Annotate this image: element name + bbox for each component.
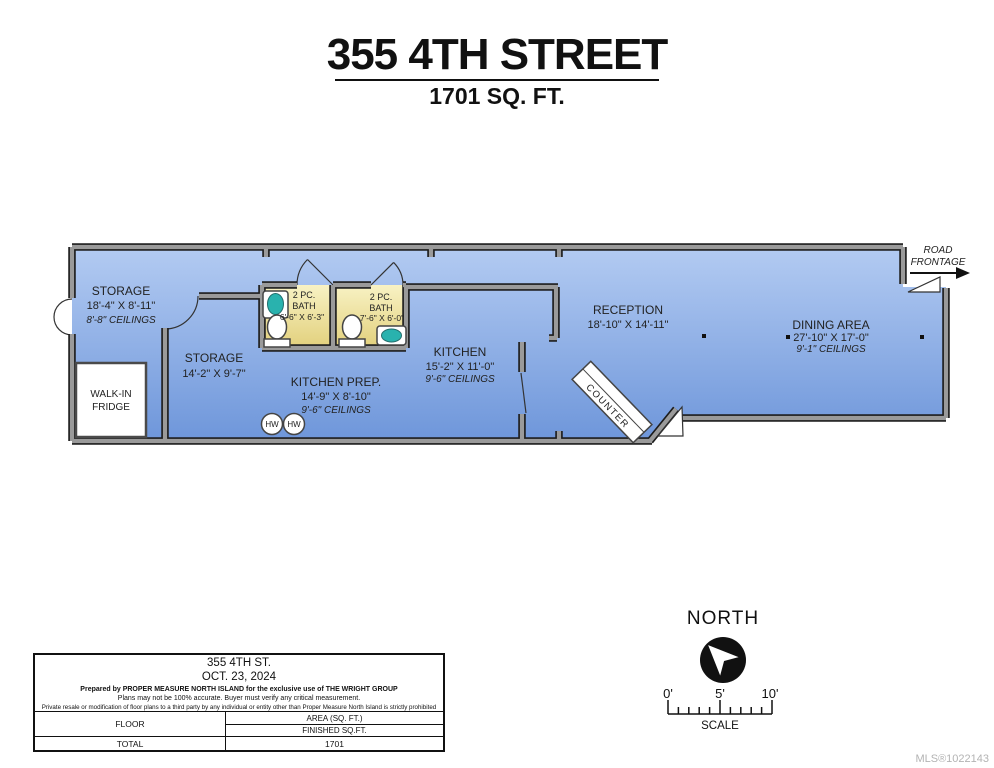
svg-text:STORAGE: STORAGE (185, 351, 243, 365)
svg-text:27'-10" X 17'-0": 27'-10" X 17'-0" (793, 332, 869, 344)
svg-text:STORAGE: STORAGE (92, 284, 150, 298)
svg-text:BATH: BATH (369, 303, 392, 313)
svg-text:6'-6" X 6'-3": 6'-6" X 6'-3" (280, 312, 324, 322)
room-label-kitchen-prep: KITCHEN PREP. 14'-9" X 8'-10" 9'-6" CEIL… (291, 375, 381, 416)
svg-text:BATH: BATH (292, 301, 315, 311)
svg-text:8'-8" CEILINGS: 8'-8" CEILINGS (86, 315, 156, 326)
road-frontage: ROAD FRONTAGE (910, 245, 970, 279)
info-prepared-by: Prepared by PROPER MEASURE NORTH ISLAND … (35, 686, 443, 693)
entry-door-leaf-northeast (908, 277, 940, 292)
svg-text:DINING AREA: DINING AREA (792, 318, 869, 332)
table-finished-header: FINISHED SQ.FT. (226, 725, 443, 736)
svg-text:HW: HW (287, 420, 301, 429)
mls-watermark: MLS®1022143 (915, 753, 989, 765)
toilet-tank-icon (264, 339, 290, 347)
svg-text:FRIDGE: FRIDGE (92, 402, 130, 413)
north-compass-icon (695, 632, 751, 688)
table-area-header: AREA (SQ. FT.) (226, 712, 443, 725)
table-total-label: TOTAL (35, 737, 225, 750)
info-date: OCT. 23, 2024 (35, 671, 443, 683)
svg-text:ROAD: ROAD (924, 245, 953, 256)
room-label-dining: DINING AREA 27'-10" X 17'-0" 9'-1" CEILI… (792, 318, 869, 355)
room-label-kitchen: KITCHEN 15'-2" X 11'-0" 9'-6" CEILINGS (425, 345, 495, 385)
svg-text:15'-2" X 11'-0": 15'-2" X 11'-0" (426, 361, 495, 373)
svg-text:7'-6" X 6'-0": 7'-6" X 6'-0" (360, 313, 404, 323)
svg-text:9'-6" CEILINGS: 9'-6" CEILINGS (301, 405, 371, 416)
svg-text:2 PC.: 2 PC. (293, 290, 316, 300)
svg-text:14'-9" X 8'-10": 14'-9" X 8'-10" (301, 391, 371, 403)
svg-text:WALK-IN: WALK-IN (90, 389, 131, 400)
info-address: 355 4TH ST. (35, 657, 443, 669)
svg-text:5': 5' (715, 688, 725, 701)
svg-text:FRONTAGE: FRONTAGE (911, 257, 966, 268)
svg-text:18'-10" X 14'-11": 18'-10" X 14'-11" (588, 319, 669, 331)
table-floor-label: FLOOR (35, 712, 225, 736)
svg-text:9'-6" CEILINGS: 9'-6" CEILINGS (425, 374, 495, 385)
flyer-page: 355 4TH STREET 1701 SQ. FT. (0, 0, 994, 768)
svg-text:10': 10' (762, 688, 779, 701)
north-label: NORTH (663, 608, 783, 630)
scale-bar: 0' 5' 10' SCALE (660, 688, 784, 738)
svg-text:0': 0' (663, 688, 673, 701)
info-disclaimer: Private resale or modification of floor … (35, 704, 443, 711)
info-accuracy: Plans may not be 100% accurate. Buyer mu… (35, 695, 443, 702)
svg-text:SCALE: SCALE (701, 720, 739, 732)
info-box: 355 4TH ST. OCT. 23, 2024 Prepared by PR… (33, 653, 445, 752)
svg-text:KITCHEN: KITCHEN (434, 345, 487, 359)
svg-text:HW: HW (265, 420, 279, 429)
svg-text:18'-4" X 8'-11": 18'-4" X 8'-11" (87, 300, 156, 312)
sink-basin-icon (382, 329, 402, 342)
room-label-storage-main: STORAGE 18'-4" X 8'-11" 8'-8" CEILINGS (86, 284, 156, 326)
table-total-value: 1701 (225, 737, 443, 750)
svg-text:9'-1" CEILINGS: 9'-1" CEILINGS (796, 344, 866, 355)
svg-text:14'-2" X 9'-7": 14'-2" X 9'-7" (182, 368, 245, 380)
area-table: FLOOR AREA (SQ. FT.) FINISHED SQ.FT. TOT… (35, 711, 443, 750)
svg-text:2 PC.: 2 PC. (370, 292, 393, 302)
floor-plan: WALK-IN FRIDGE HW HW (0, 0, 994, 560)
toilet-tank-icon (339, 339, 365, 347)
toilet-icon (343, 315, 362, 339)
svg-text:KITCHEN PREP.: KITCHEN PREP. (291, 375, 381, 389)
svg-text:RECEPTION: RECEPTION (593, 303, 663, 317)
walk-in-fridge: WALK-IN FRIDGE (76, 363, 146, 437)
road-frontage-arrowhead-icon (956, 267, 970, 279)
